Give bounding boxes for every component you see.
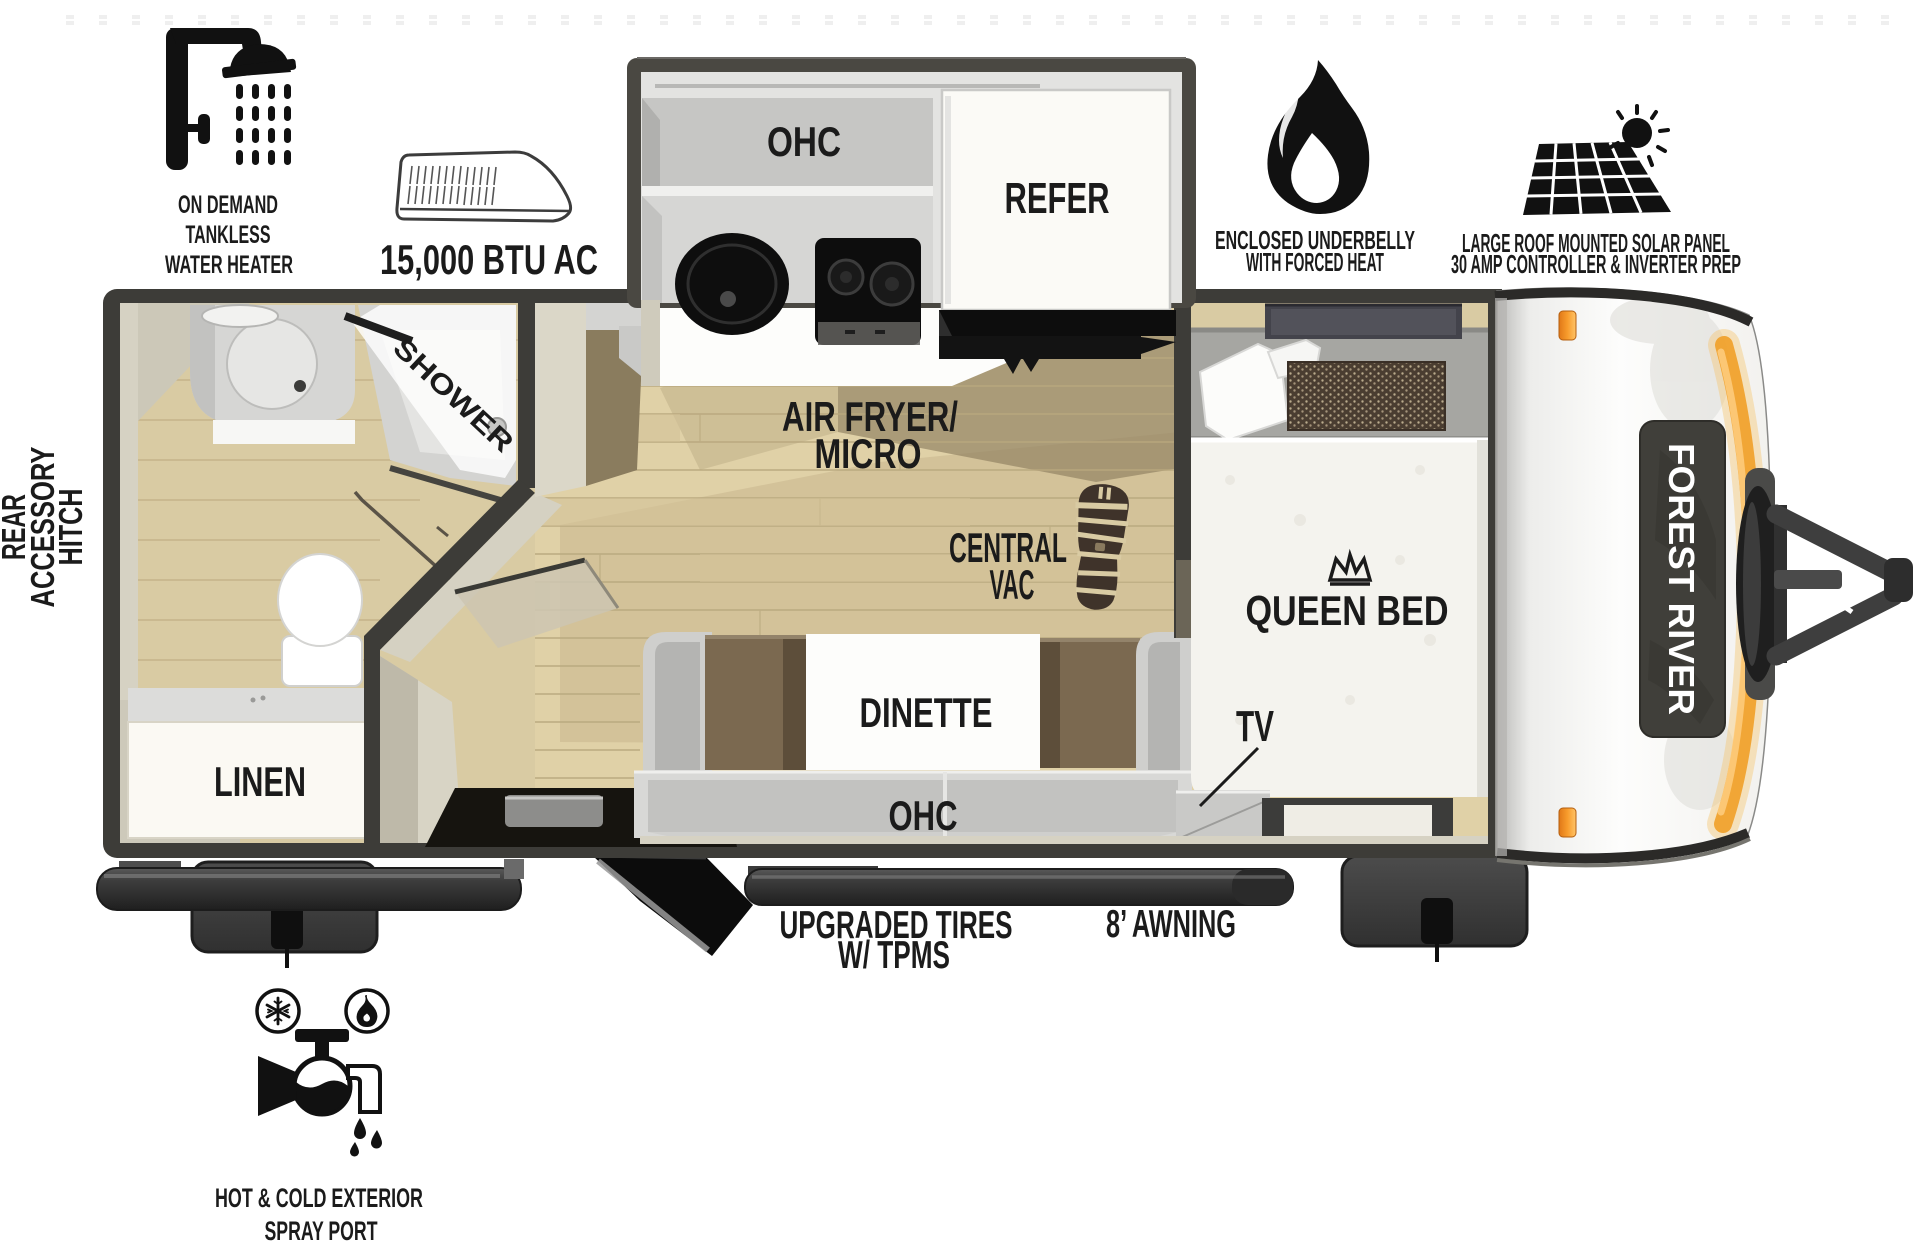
svg-text:OHC: OHC xyxy=(767,118,841,165)
svg-text:WATER HEATER: WATER HEATER xyxy=(165,251,293,279)
svg-text:DINETTE: DINETTE xyxy=(860,689,993,736)
svg-text:WITH FORCED HEAT: WITH FORCED HEAT xyxy=(1246,247,1384,277)
svg-text:TV: TV xyxy=(1236,702,1274,751)
svg-text:8’ AWNING: 8’ AWNING xyxy=(1106,903,1236,946)
svg-text:15,000 BTU AC: 15,000 BTU AC xyxy=(380,236,598,283)
svg-text:TANKLESS: TANKLESS xyxy=(186,221,271,249)
svg-text:W/ TPMS: W/ TPMS xyxy=(838,934,950,977)
svg-text:VAC: VAC xyxy=(990,561,1035,608)
svg-text:LINEN: LINEN xyxy=(214,758,306,805)
svg-text:30 AMP CONTROLLER & INVERTER P: 30 AMP CONTROLLER & INVERTER PREP xyxy=(1451,249,1741,279)
svg-text:FOREST RIVER: FOREST RIVER xyxy=(1661,443,1702,715)
svg-text:HOT & COLD EXTERIOR: HOT & COLD EXTERIOR xyxy=(215,1183,423,1213)
svg-text:SPRAY PORT: SPRAY PORT xyxy=(265,1216,378,1246)
svg-text:QUEEN BED: QUEEN BED xyxy=(1246,587,1449,634)
svg-text:MICRO: MICRO xyxy=(815,430,922,477)
svg-text:OHC: OHC xyxy=(889,792,958,839)
svg-text:ON DEMAND: ON DEMAND xyxy=(178,191,278,219)
svg-text:REFER: REFER xyxy=(1005,174,1110,223)
svg-text:HITCH: HITCH xyxy=(52,489,89,566)
